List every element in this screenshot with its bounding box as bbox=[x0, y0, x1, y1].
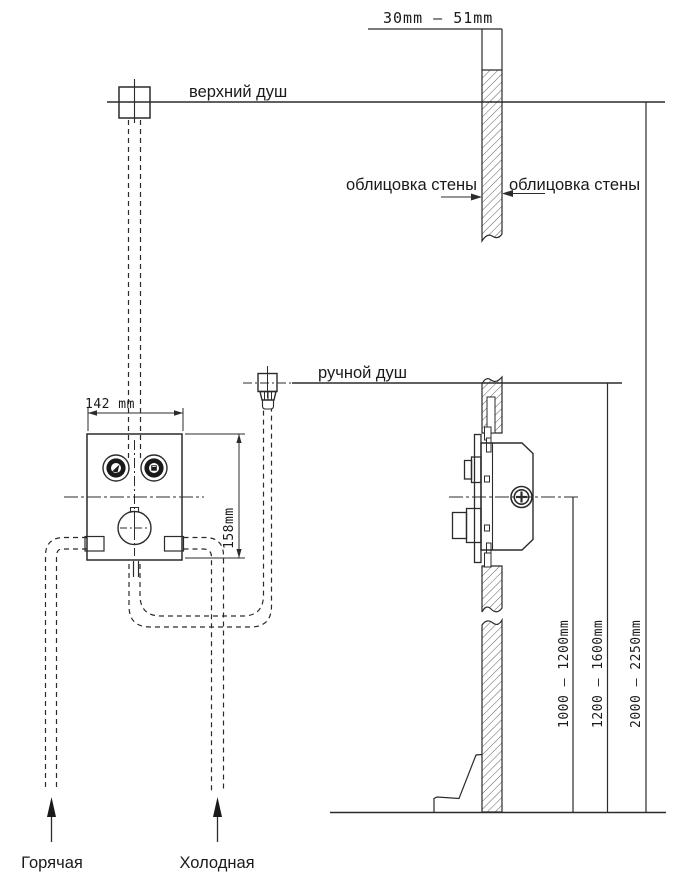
diverter-button-right bbox=[141, 455, 167, 481]
hand-shower-feed-inner bbox=[140, 409, 264, 616]
supply-inlets: Горячая Холодная bbox=[21, 797, 254, 872]
height-dimensions: 1000 — 1200mm 1200 — 1600mm 2000 — 2250m… bbox=[557, 102, 646, 812]
diverter-button-left bbox=[103, 455, 129, 481]
wall-depth-label: 30mm — 51mm bbox=[383, 9, 493, 27]
cladding-arrow-right-icon bbox=[471, 194, 482, 201]
hand-shower-height-label: 1200 — 1600mm bbox=[591, 620, 606, 728]
overhead-shower-reference: верхний душ bbox=[107, 79, 665, 123]
wall-hatch-top-segment bbox=[482, 70, 502, 241]
wall-depth-dimension: 30mm — 51mm bbox=[368, 9, 502, 29]
hot-inlet: Горячая bbox=[21, 797, 83, 872]
panel-width-dimension: 142 mm bbox=[85, 397, 183, 431]
valve-face-plate bbox=[475, 435, 482, 563]
valve-button-stem bbox=[472, 457, 482, 483]
hand-shower-label: ручной душ bbox=[318, 364, 407, 382]
cold-inlet-arrow-icon bbox=[213, 797, 222, 817]
valve-height-label: 1000 — 1200mm bbox=[557, 620, 572, 728]
hot-supply-pipe-inner bbox=[57, 549, 88, 791]
wall-hatch-bottom-segment bbox=[482, 620, 502, 812]
panel-height-label: 158mm bbox=[222, 507, 237, 549]
cold-supply-pipe-inner bbox=[184, 549, 212, 791]
hot-water-label: Горячая bbox=[21, 854, 83, 872]
wall-cladding-label-right: облицовка стены bbox=[509, 176, 640, 194]
valve-side-view bbox=[449, 427, 578, 567]
cladding-arrow-left-icon bbox=[502, 190, 513, 197]
overhead-height-label: 2000 — 2250mm bbox=[629, 620, 644, 728]
wall-section bbox=[482, 29, 502, 812]
cold-inlet: Холодная bbox=[179, 797, 254, 872]
hand-shower-feed-outer bbox=[129, 409, 272, 627]
panel-inlet-slot-right bbox=[165, 537, 184, 552]
diagram-canvas: 30mm — 51mm верхний душ облицовка стены … bbox=[0, 0, 677, 888]
cold-water-label: Холодная bbox=[179, 854, 254, 872]
hot-supply-pipe-outer bbox=[46, 538, 88, 792]
panel-width-label: 142 mm bbox=[85, 397, 135, 412]
floor-trim-profile bbox=[434, 755, 482, 813]
overhead-shower-label: верхний душ bbox=[189, 83, 287, 101]
valve-knob-stem bbox=[467, 509, 482, 543]
hand-shower-outlet bbox=[258, 366, 277, 409]
shower-installation-diagram: 30mm — 51mm верхний душ облицовка стены … bbox=[0, 0, 677, 888]
cold-supply-pipe-outer bbox=[184, 538, 224, 792]
wall-hatch-mid-segment bbox=[482, 566, 502, 612]
panel-inlet-slot-left bbox=[85, 537, 104, 552]
hot-inlet-arrow-icon bbox=[47, 797, 56, 817]
wall-cladding-label-left: облицовка стены bbox=[346, 176, 477, 194]
mixer-panel: 142 mm 158mm bbox=[64, 397, 245, 577]
hand-shower-reference: ручной душ bbox=[243, 364, 622, 409]
